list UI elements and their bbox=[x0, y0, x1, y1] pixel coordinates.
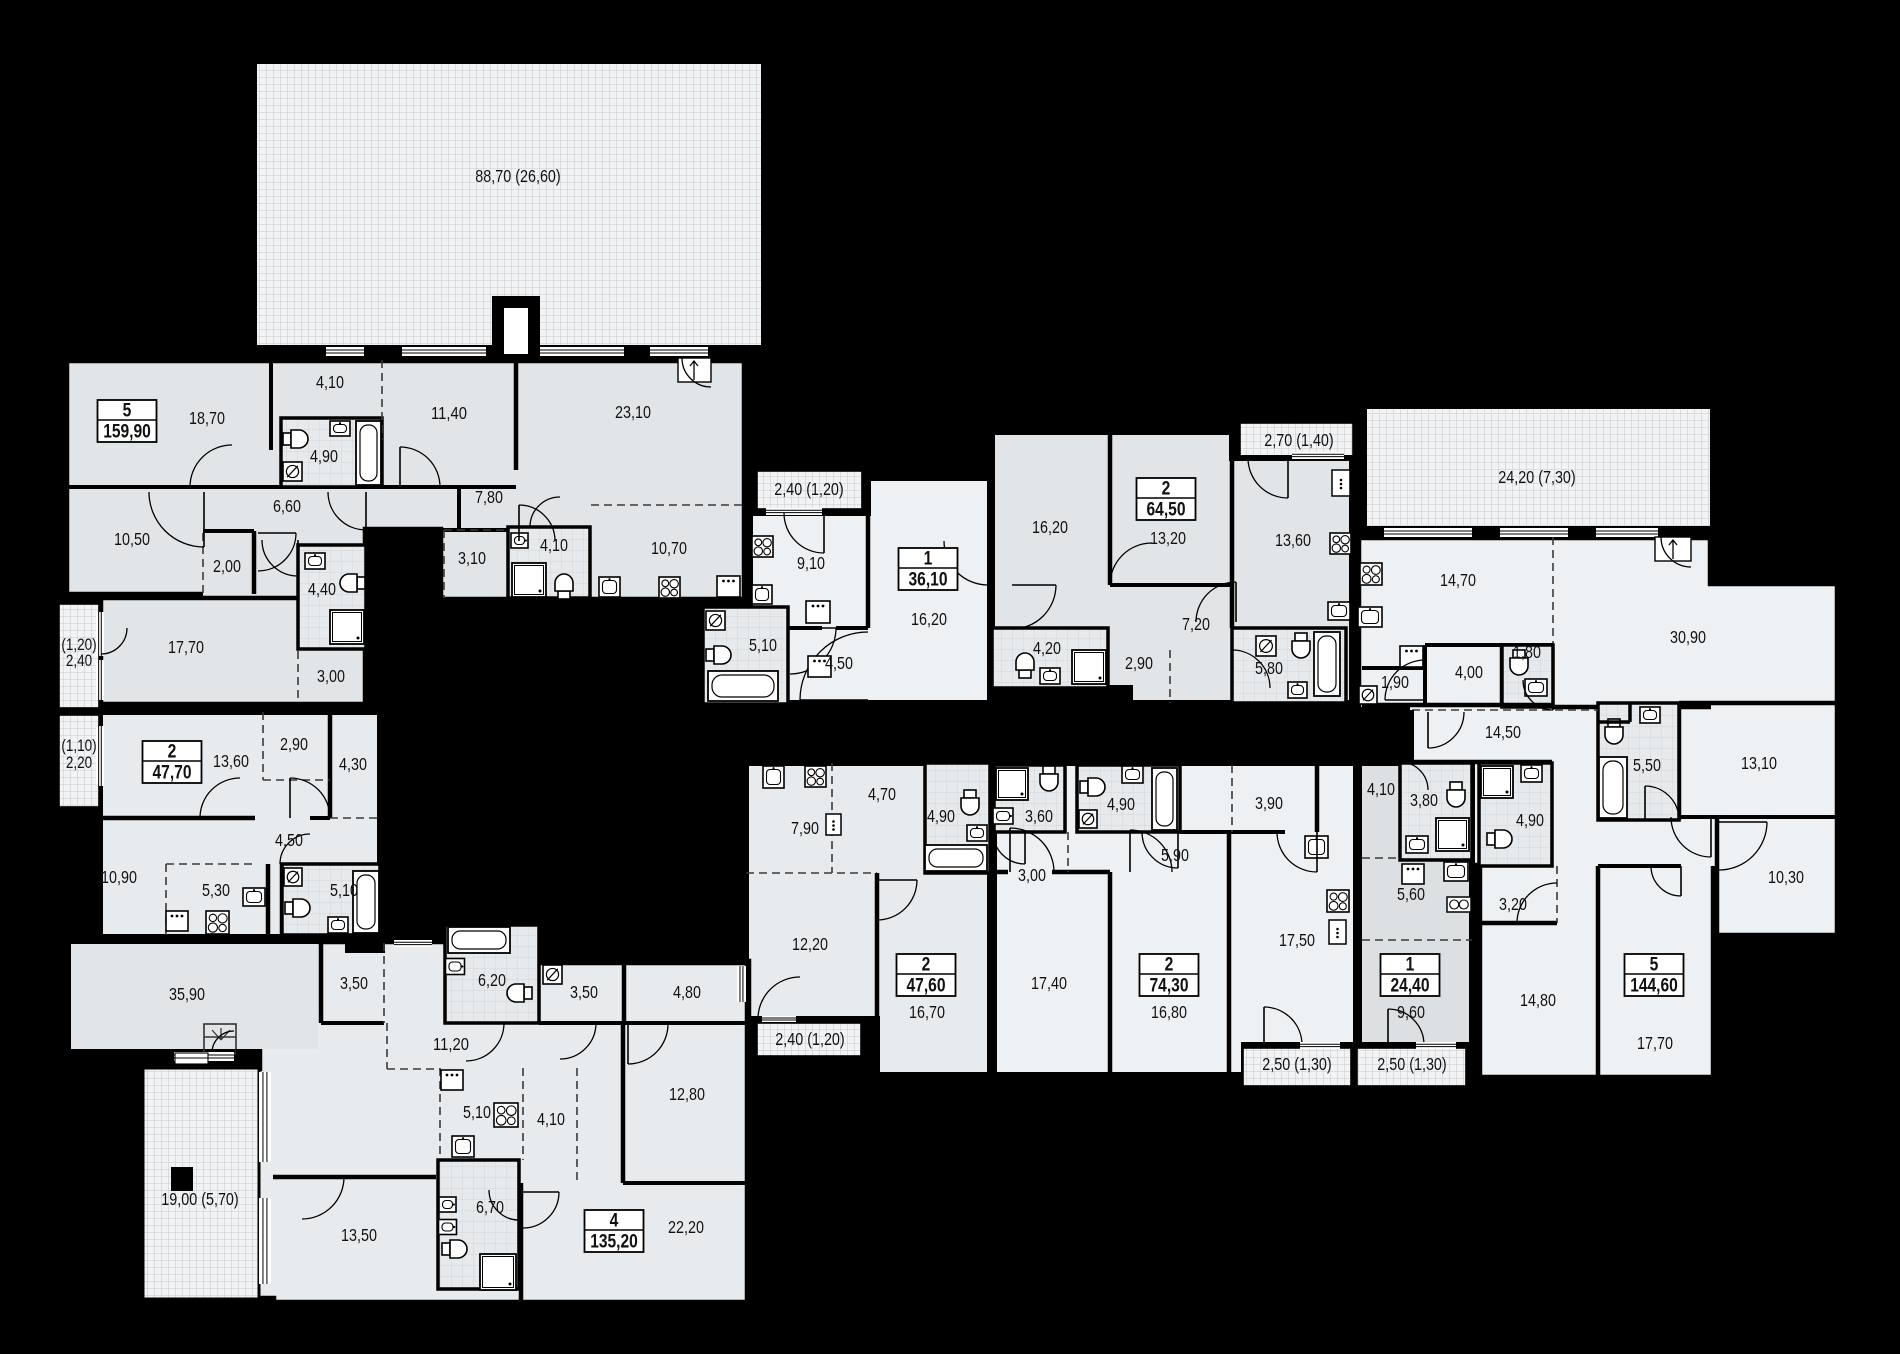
svg-text:30,90: 30,90 bbox=[1670, 627, 1706, 647]
svg-text:5,10: 5,10 bbox=[463, 1102, 491, 1122]
svg-text:4,90: 4,90 bbox=[927, 806, 955, 826]
svg-text:47,70: 47,70 bbox=[153, 763, 192, 784]
svg-text:10,50: 10,50 bbox=[114, 529, 150, 549]
svg-text:7,80: 7,80 bbox=[475, 487, 503, 507]
svg-text:2,70 (1,40): 2,70 (1,40) bbox=[1264, 430, 1333, 450]
svg-text:1: 1 bbox=[1406, 955, 1415, 976]
svg-text:11,20: 11,20 bbox=[433, 1034, 469, 1054]
svg-text:3,60: 3,60 bbox=[1025, 806, 1053, 826]
svg-text:6,20: 6,20 bbox=[478, 970, 506, 990]
svg-text:4,10: 4,10 bbox=[1367, 779, 1395, 799]
svg-text:36,10: 36,10 bbox=[909, 570, 948, 591]
svg-text:4,50: 4,50 bbox=[275, 830, 303, 850]
svg-text:12,80: 12,80 bbox=[669, 1084, 705, 1104]
svg-text:17,40: 17,40 bbox=[1031, 973, 1067, 993]
svg-text:4,10: 4,10 bbox=[316, 372, 344, 392]
svg-text:5,60: 5,60 bbox=[1397, 884, 1425, 904]
svg-text:4,90: 4,90 bbox=[1107, 794, 1135, 814]
svg-text:2: 2 bbox=[1162, 479, 1171, 500]
svg-text:18,70: 18,70 bbox=[189, 408, 225, 428]
svg-text:16,20: 16,20 bbox=[1032, 517, 1068, 537]
svg-text:88,70 (26,60): 88,70 (26,60) bbox=[475, 166, 560, 186]
svg-text:5,10: 5,10 bbox=[749, 635, 777, 655]
svg-text:4,10: 4,10 bbox=[540, 535, 568, 555]
svg-text:13,10: 13,10 bbox=[1741, 753, 1777, 773]
svg-text:14,70: 14,70 bbox=[1440, 570, 1476, 590]
svg-text:74,30: 74,30 bbox=[1150, 976, 1189, 997]
svg-text:23,10: 23,10 bbox=[615, 402, 651, 422]
svg-text:22,20: 22,20 bbox=[668, 1217, 704, 1237]
svg-text:64,50: 64,50 bbox=[1147, 500, 1186, 521]
svg-text:135,20: 135,20 bbox=[590, 1232, 638, 1253]
svg-text:14,50: 14,50 bbox=[1485, 722, 1521, 742]
svg-text:3,00: 3,00 bbox=[317, 666, 345, 686]
svg-text:19,00 (5,70): 19,00 (5,70) bbox=[161, 1189, 238, 1209]
svg-text:4: 4 bbox=[610, 1211, 619, 1232]
svg-text:35,90: 35,90 bbox=[169, 984, 205, 1004]
svg-text:9,60: 9,60 bbox=[1397, 1002, 1425, 1022]
svg-text:16,80: 16,80 bbox=[1151, 1002, 1187, 1022]
svg-text:10,70: 10,70 bbox=[651, 538, 687, 558]
svg-text:7,20: 7,20 bbox=[1182, 614, 1210, 634]
svg-text:3,00: 3,00 bbox=[1018, 865, 1046, 885]
svg-text:4,10: 4,10 bbox=[537, 1109, 565, 1129]
svg-text:2,40: 2,40 bbox=[66, 652, 92, 670]
svg-text:5: 5 bbox=[1650, 955, 1659, 976]
svg-text:1,90: 1,90 bbox=[1381, 672, 1409, 692]
svg-text:4,20: 4,20 bbox=[1033, 638, 1061, 658]
svg-text:3,50: 3,50 bbox=[340, 973, 368, 993]
svg-text:14,80: 14,80 bbox=[1520, 990, 1556, 1010]
svg-text:3,90: 3,90 bbox=[1255, 793, 1283, 813]
svg-text:(1,10): (1,10) bbox=[61, 737, 96, 755]
svg-text:159,90: 159,90 bbox=[103, 422, 151, 443]
svg-text:13,50: 13,50 bbox=[341, 1225, 377, 1245]
svg-text:4,80: 4,80 bbox=[673, 982, 701, 1002]
svg-text:3,50: 3,50 bbox=[570, 982, 598, 1002]
svg-text:3,10: 3,10 bbox=[458, 548, 486, 568]
svg-text:1,80: 1,80 bbox=[1513, 642, 1541, 662]
svg-text:13,60: 13,60 bbox=[213, 751, 249, 771]
svg-text:4,90: 4,90 bbox=[1516, 810, 1544, 830]
svg-text:4,50: 4,50 bbox=[825, 653, 853, 673]
svg-text:13,20: 13,20 bbox=[1150, 528, 1186, 548]
svg-text:2,90: 2,90 bbox=[1125, 653, 1153, 673]
svg-text:4,70: 4,70 bbox=[868, 784, 896, 804]
svg-text:2,50 (1,30): 2,50 (1,30) bbox=[1377, 1054, 1446, 1074]
svg-text:24,40: 24,40 bbox=[1391, 976, 1430, 997]
svg-text:17,70: 17,70 bbox=[168, 637, 204, 657]
svg-text:4,30: 4,30 bbox=[339, 754, 367, 774]
svg-text:10,30: 10,30 bbox=[1768, 867, 1804, 887]
svg-text:6,70: 6,70 bbox=[476, 1197, 504, 1217]
svg-text:10,90: 10,90 bbox=[101, 867, 137, 887]
svg-text:13,60: 13,60 bbox=[1275, 530, 1311, 550]
svg-text:9,10: 9,10 bbox=[797, 553, 825, 573]
svg-text:2,50 (1,30): 2,50 (1,30) bbox=[1262, 1054, 1331, 1074]
svg-text:4,40: 4,40 bbox=[308, 579, 336, 599]
svg-text:16,70: 16,70 bbox=[909, 1002, 945, 1022]
svg-text:2,90: 2,90 bbox=[280, 734, 308, 754]
svg-text:3,80: 3,80 bbox=[1410, 790, 1438, 810]
svg-text:5,10: 5,10 bbox=[330, 880, 358, 900]
svg-text:4,90: 4,90 bbox=[310, 446, 338, 466]
svg-text:4,00: 4,00 bbox=[1455, 662, 1483, 682]
svg-text:17,70: 17,70 bbox=[1637, 1033, 1673, 1053]
svg-text:2: 2 bbox=[1165, 955, 1174, 976]
svg-text:16,20: 16,20 bbox=[911, 609, 947, 629]
svg-text:2,40 (1,20): 2,40 (1,20) bbox=[775, 1029, 844, 1049]
svg-text:24,20 (7,30): 24,20 (7,30) bbox=[1498, 467, 1575, 487]
svg-text:2,40 (1,20): 2,40 (1,20) bbox=[774, 479, 843, 499]
svg-text:11,40: 11,40 bbox=[431, 403, 467, 423]
svg-text:5,80: 5,80 bbox=[1255, 658, 1283, 678]
svg-text:5,50: 5,50 bbox=[1633, 755, 1661, 775]
svg-text:5: 5 bbox=[123, 401, 132, 422]
svg-text:7,90: 7,90 bbox=[791, 818, 819, 838]
svg-text:6,60: 6,60 bbox=[273, 496, 301, 516]
svg-text:144,60: 144,60 bbox=[1630, 976, 1678, 997]
svg-text:17,50: 17,50 bbox=[1279, 930, 1315, 950]
svg-text:1: 1 bbox=[924, 549, 933, 570]
svg-text:3,20: 3,20 bbox=[1499, 894, 1527, 914]
svg-text:2: 2 bbox=[922, 955, 931, 976]
svg-text:2,00: 2,00 bbox=[213, 556, 241, 576]
svg-text:5,30: 5,30 bbox=[202, 880, 230, 900]
svg-text:5,90: 5,90 bbox=[1161, 845, 1189, 865]
svg-text:2: 2 bbox=[168, 742, 177, 763]
svg-text:12,20: 12,20 bbox=[792, 934, 828, 954]
svg-text:47,60: 47,60 bbox=[907, 976, 946, 997]
svg-text:2,20: 2,20 bbox=[66, 754, 92, 772]
